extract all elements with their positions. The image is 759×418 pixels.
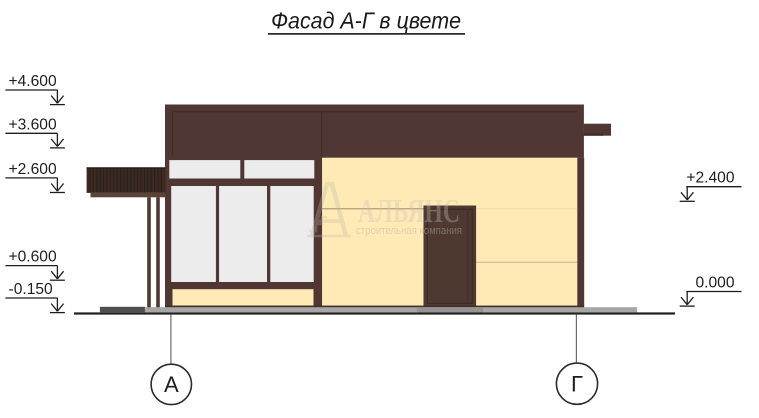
svg-text:А: А xyxy=(164,372,179,397)
svg-text:строительная компания: строительная компания xyxy=(356,225,462,237)
svg-text:+4.600: +4.600 xyxy=(9,73,57,90)
svg-text:0.000: 0.000 xyxy=(695,275,734,292)
svg-text:Г: Г xyxy=(571,372,583,397)
svg-text:+2.400: +2.400 xyxy=(686,170,734,187)
svg-text:+3.600: +3.600 xyxy=(9,116,57,133)
svg-text:+0.600: +0.600 xyxy=(9,249,57,266)
svg-text:Фасад А-Г в цвете: Фасад А-Г в цвете xyxy=(271,8,461,34)
svg-text:-0.150: -0.150 xyxy=(9,281,54,298)
svg-text:+2.600: +2.600 xyxy=(9,161,57,178)
